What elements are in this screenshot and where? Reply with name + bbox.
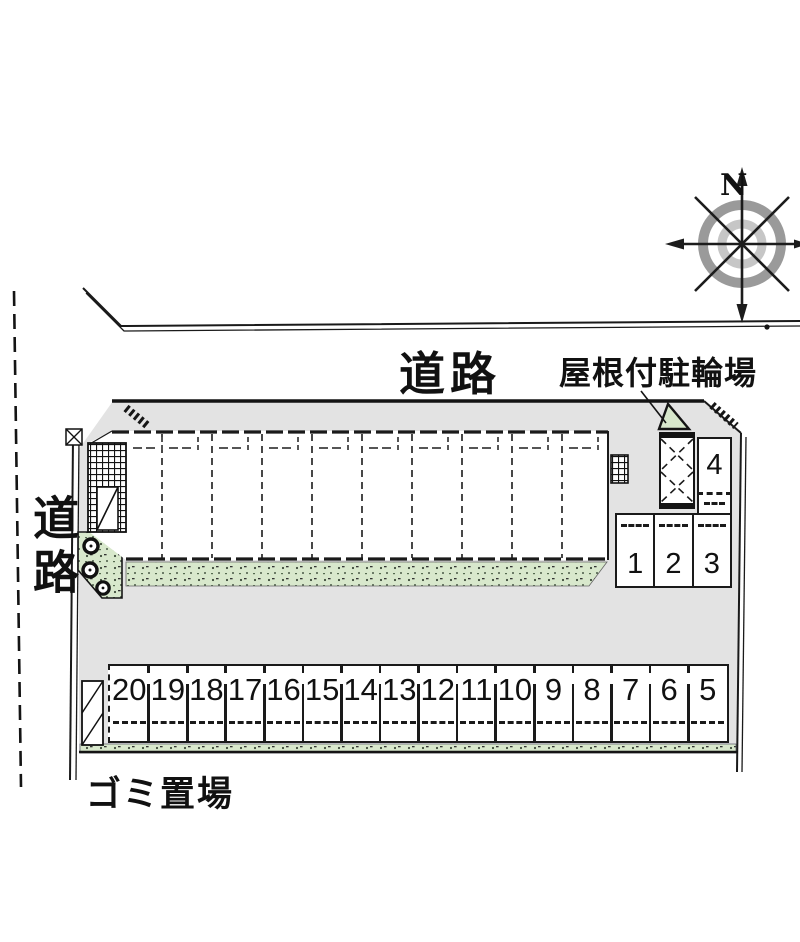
parking-stall-16: 16 [264, 666, 303, 741]
parking-stall-15: 15 [303, 666, 342, 741]
parking-stall-number: 9 [534, 672, 573, 708]
stall-dashed-line [152, 721, 185, 724]
parking-stall-number: 14 [341, 672, 380, 708]
stall-dashed-line [537, 721, 570, 724]
parking-stall-number: 13 [380, 672, 419, 708]
site-plan-canvas: 201918171615141312111098765 123 4 道路 屋根付… [0, 0, 800, 942]
road-top-lines [83, 288, 800, 331]
parking-stall-number: 18 [187, 672, 226, 708]
parking-stall-8: 8 [573, 666, 612, 741]
road-label-left: 道路 [20, 494, 86, 602]
parking-stall-12: 12 [419, 666, 458, 741]
parking-stall-number: 16 [264, 672, 303, 708]
parking-stall-number: 3 [694, 548, 730, 581]
parking-stall-number: 1 [617, 548, 653, 581]
stall-dashed-line [499, 721, 532, 724]
stall-dashed-line [653, 721, 686, 724]
parking-row-5-20: 201918171615141312111098765 [108, 664, 729, 743]
green-strip-building [126, 562, 607, 586]
parking-stall-3: 3 [694, 515, 730, 586]
stairwell-block [88, 443, 126, 532]
stall-dashed-line [190, 721, 223, 724]
parking-stall-14: 14 [341, 666, 380, 741]
parking-stall-1: 1 [617, 515, 655, 586]
compass-north-label: N [720, 168, 747, 203]
parking-stall-5: 5 [688, 666, 727, 741]
parking-space-4-number: 4 [706, 449, 722, 482]
parking-stall-18: 18 [187, 666, 226, 741]
stall-dashed-line [576, 721, 609, 724]
stall-dashed-line [614, 721, 647, 724]
parking-stall-number: 5 [688, 672, 727, 708]
parking-stall-number: 11 [457, 672, 496, 708]
stall-dashed-line [698, 524, 726, 527]
meter-box [611, 455, 628, 483]
stall-dashed-line [229, 721, 262, 724]
stall-dashed-line [621, 524, 649, 527]
stall-dashed-line [659, 524, 687, 527]
parking-stall-6: 6 [650, 666, 689, 741]
stall-dashed-line [383, 721, 416, 724]
bicycle-parking-label: 屋根付駐輪場 [559, 348, 757, 394]
parking-stall-number: 10 [496, 672, 535, 708]
parking-stall-number: 15 [303, 672, 342, 708]
parking-space-4: 4 [697, 437, 732, 495]
stall-dashed-line [306, 721, 339, 724]
parking-stall-number: 7 [611, 672, 650, 708]
parking-stall-number: 8 [573, 672, 612, 708]
garbage-box [82, 681, 103, 745]
parking-stall-17: 17 [226, 666, 265, 741]
parking-stall-number: 12 [419, 672, 458, 708]
parking-space-4-gap [697, 495, 732, 513]
parking-stall-7: 7 [611, 666, 650, 741]
parking-row-1-3: 123 [615, 513, 732, 588]
parking-stall-number: 2 [655, 548, 691, 581]
parking-stall-10: 10 [496, 666, 535, 741]
garbage-area-label: ゴミ置場 [86, 766, 234, 817]
parking-stall-9: 9 [534, 666, 573, 741]
parking-stall-2: 2 [655, 515, 693, 586]
parking-stall-13: 13 [380, 666, 419, 741]
stall-dashed-line [113, 721, 146, 724]
road-label-top: 道路 [399, 338, 501, 404]
parking-stall-number: 20 [110, 672, 149, 708]
parking-stall-number: 19 [149, 672, 188, 708]
stall-dashed-line [267, 721, 300, 724]
stall-dashed-line [691, 721, 724, 724]
parking-stall-number: 6 [650, 672, 689, 708]
parking-stall-19: 19 [149, 666, 188, 741]
building-outline [88, 431, 608, 560]
parking-stall-20: 20 [110, 666, 149, 741]
stall-dashed-line [422, 721, 455, 724]
parking-stall-11: 11 [457, 666, 496, 741]
stall-dashed-line [344, 721, 377, 724]
stall-dashed-line [460, 721, 493, 724]
parking-stall-number: 17 [226, 672, 265, 708]
